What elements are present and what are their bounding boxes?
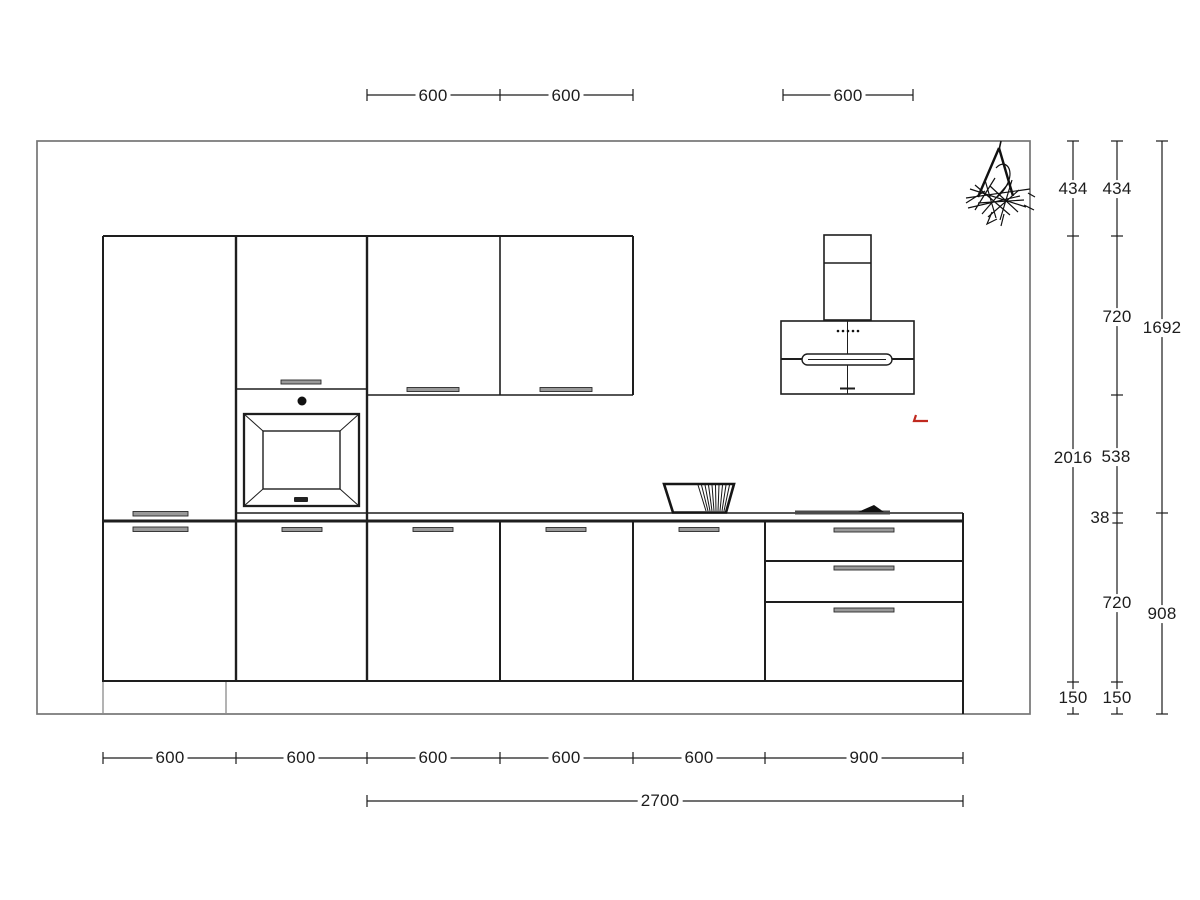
dim-label-plinth-a: 150 [1056,689,1091,707]
base-door-handle-1 [413,528,453,532]
red-reference-mark [914,415,928,421]
built-in-oven [244,397,359,507]
dim-label-ceiling-to-worktop: 1692 [1140,319,1185,337]
dim-label-plinth-b: 150 [1100,689,1135,707]
dim-label-drawer-unit: 900 [847,749,882,767]
dim-label-base-4: 600 [549,749,584,767]
dim-label-total-run: 2700 [638,792,683,810]
dim-label-base-3: 600 [416,749,451,767]
drawer-handle-1 [834,528,894,532]
hood-control-dots [837,330,860,333]
cabinet-run [103,236,963,714]
dim-label-wall-cab-height: 720 [1100,308,1135,326]
dim-label-base-5: 600 [682,749,717,767]
drawer-handle-3 [834,608,894,612]
oven-top-door-handle [281,380,321,384]
room-outline [37,141,1030,714]
extractor-hood [781,235,914,394]
kitchen-elevation-drawing: 600 600 600 600 600 600 600 600 900 2700… [0,0,1200,900]
dim-label-hood-width: 600 [831,87,866,105]
oven-knob [298,397,307,406]
base-door-handle-3 [679,528,719,532]
dim-label-worktop-thickness: 38 [1087,509,1112,527]
dim-label-base-1: 600 [153,749,188,767]
dim-label-wall-cab-1: 600 [416,87,451,105]
drawer-handle-2 [834,566,894,570]
dim-label-wall-cab-2: 600 [549,87,584,105]
dim-label-base-2: 600 [284,749,319,767]
oven-door-outer [244,414,359,506]
oven-logo-mark [294,497,308,502]
plinth [103,682,226,713]
oven-window [263,431,340,489]
dim-label-worktop-height: 908 [1145,605,1180,623]
under-oven-door-handle [282,528,322,532]
pendant-lamp-sketch [966,141,1035,226]
wall-cabinet-handle-left [407,388,459,392]
dim-label-tall-height: 2016 [1051,449,1096,467]
tall-lower-door-handle [133,527,188,532]
dim-label-soffit-a: 434 [1056,180,1091,198]
cooktop [795,505,890,513]
dim-label-soffit-b: 434 [1100,180,1135,198]
hood-chimney [824,235,871,320]
tall-upper-door-handle [133,512,188,517]
fruit-bowl [664,484,734,513]
wall-cabinet-handle-right [540,388,592,392]
dim-label-base-height: 720 [1100,594,1135,612]
dim-label-splashback: 538 [1099,448,1134,466]
base-door-handle-2 [546,528,586,532]
